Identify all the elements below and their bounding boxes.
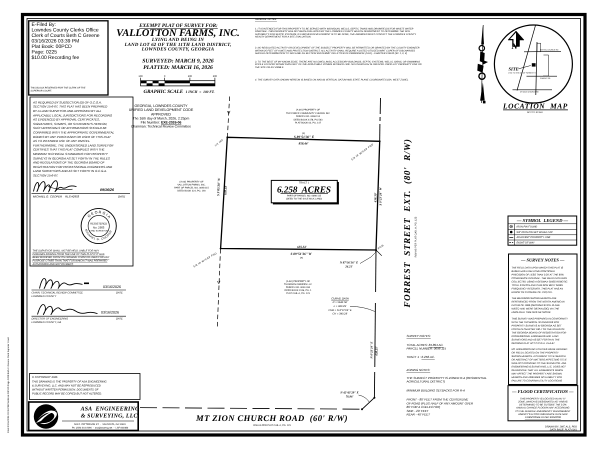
svg-text:N: N	[511, 41, 519, 51]
svg-text:DATA BASE: PLAT-0001: DATA BASE: PLAT-0001	[550, 429, 578, 432]
svg-text:SUPERIOR COURT.: SUPERIOR COURT.	[31, 90, 53, 93]
svg-text:Chairman: Technical Review Com: Chairman: Technical Review Committee	[131, 124, 191, 128]
svg-text:R = 5642.58': R = 5642.58'	[333, 301, 348, 304]
svg-text:THOMSON OWNERS LLC: THOMSON OWNERS LLC	[284, 283, 312, 286]
svg-text:SECTION 15-6-67.: SECTION 15-6-67.	[33, 174, 59, 178]
svg-text:L = 340.29': L = 340.29'	[334, 305, 347, 308]
svg-text:PART OF PARCEL NO. 0098 115: PART OF PARCEL NO. 0098 115	[174, 187, 209, 190]
svg-text:© COPYRIGHT 2026: © COPYRIGHT 2026	[32, 376, 58, 379]
svg-text:PLAT BOOK 03, PG. 147: PLAT BOOK 03, PG. 147	[295, 122, 322, 125]
svg-text:RIGHT-OF-WAY: RIGHT-OF-WAY	[517, 241, 535, 244]
svg-text:26.21': 26.21'	[344, 264, 353, 268]
svg-text:CHB = N 8°07'26" E: CHB = N 8°07'26" E	[328, 309, 351, 312]
svg-text:$10.00 Recording fee: $10.00 Recording fee	[32, 55, 80, 61]
svg-text:PARCEL NO. 0049 034: PARCEL NO. 0049 034	[286, 286, 311, 289]
svg-text:PART OF PARCEL NO. 0098 115: PART OF PARCEL NO. 0098 115	[287, 194, 322, 197]
svg-text:eGPS REAL TIME GPS NETWORK.: eGPS REAL TIME GPS NETWORK.	[512, 311, 552, 314]
svg-text:BETHEL CHURCH RD: BETHEL CHURCH RD	[540, 49, 559, 52]
svg-text:REAR - 40' FEET: REAR - 40' FEET	[407, 413, 432, 417]
svg-text:PLATTED: MARCH 16, 2026: PLATTED: MARCH 16, 2026	[143, 65, 213, 71]
svg-text:FAILURE TO CONFIRM UTILITY LOC: FAILURE TO CONFIRM UTILITY LOCATIONS	[512, 380, 563, 383]
svg-text:N 0°23'24" E: N 0°23'24" E	[369, 342, 373, 360]
svg-text:— SURVEY NOTES —: — SURVEY NOTES —	[520, 257, 565, 262]
svg-text:PLAT CAB. A, PG. 123: PLAT CAB. A, PG. 123	[286, 292, 310, 295]
svg-text:DEED BOOK 324, PG. 190: DEED BOOK 324, PG. 190	[177, 190, 206, 193]
svg-text:LOWNDES COUNTY, GEORGIA: LOWNDES COUNTY, GEORGIA	[141, 46, 215, 52]
svg-text:& SURVEYING, LLC.: & SURVEYING, LLC.	[81, 414, 140, 420]
svg-text:DEED BOOK 2246, PG. 1: DEED BOOK 2246, PG. 1	[285, 289, 313, 292]
svg-text:03/16/2026: 03/16/2026	[101, 310, 119, 314]
svg-text:6.258 ACRES: 6.258 ACRES	[277, 184, 331, 194]
svg-text:03/16/2026: 03/16/2026	[103, 285, 121, 289]
svg-text:CURVE DATA: CURVE DATA	[331, 296, 349, 300]
svg-text:AUTHORIZED AND NOT PAYMENT.: AUTHORIZED AND NOT PAYMENT.	[32, 263, 74, 266]
svg-text:LOCATION MAP: LOCATION MAP	[502, 102, 568, 111]
svg-text:4. THE SURVEY DATA SHOWN HERE: 4. THE SURVEY DATA SHOWN HEREON IS BASED…	[255, 79, 409, 82]
svg-text:DEED BOOK 4178, PG 563: DEED BOOK 4178, PG 563	[294, 118, 324, 121]
svg-text:CHAIR, TECHNICAL REVIEW COMMIT: CHAIR, TECHNICAL REVIEW COMMITTEE	[32, 291, 84, 294]
svg-text:(DEED TO THE SALE MILK LAND): (DEED TO THE SALE MILK LAND)	[286, 198, 322, 201]
svg-text:PARCEL NUMBER: 0098 115: PARCEL NUMBER: 0098 115	[407, 346, 447, 350]
svg-text:HEALTH DEPARTMENT FOR A SITE E: HEALTH DEPARTMENT FOR A SITE EVALUATION.	[255, 36, 311, 39]
svg-text:ERROR OF CLOSURE OF 1'/22,215: ERROR OF CLOSURE OF 1'/22,215'.	[512, 291, 553, 294]
svg-text:200: 200	[213, 75, 218, 78]
svg-text:ASA ENGINEERING: ASA ENGINEERING	[80, 407, 140, 413]
svg-text:GEORGIA PLAT ACT O.C.G.A. 15-: GEORGIA PLAT ACT O.C.G.A. 15-6-67.	[512, 342, 556, 345]
svg-text:PUBLIC RECORD MAY BE COPIED BU: PUBLIC RECORD MAY BE COPIED BUT NOT ALTE…	[32, 392, 102, 395]
svg-text:DATE: DATE	[116, 291, 123, 294]
svg-text:— FLOOD CERTIFICATION —: — FLOOD CERTIFICATION —	[511, 389, 574, 394]
svg-text:AGRICULTURAL DISTRICT): AGRICULTURAL DISTRICT)	[406, 380, 446, 384]
svg-text:638.18': 638.18'	[223, 185, 228, 195]
svg-text:LOWNDES COUNTY, GA: LOWNDES COUNTY, GA	[32, 321, 62, 324]
svg-text:LOWNDES COUNTY: LOWNDES COUNTY	[32, 295, 57, 298]
svg-text:DATE: DATE	[116, 318, 123, 321]
svg-text:ADJACENT PROPERTY LINE: ADJACENT PROPERTY LINE	[516, 236, 551, 239]
svg-text:13185C0056E DATED 9/26/2008: 13185C0056E DATED 9/26/2008	[525, 416, 562, 419]
svg-text:GENERAL NOTES:: GENERAL NOTES:	[255, 18, 277, 21]
svg-text:PARCEL NO. 0098 114: PARCEL NO. 0098 114	[296, 115, 321, 118]
svg-text:(A 06') PROPERTY OF: (A 06') PROPERTY OF	[286, 280, 310, 283]
svg-text:WITHOUT WRITTEN PERMISSION. DO: WITHOUT WRITTEN PERMISSION. DOCUMENTS OF	[32, 388, 99, 391]
svg-text:R/W AS PER PLAT CAB. A, PG. 12: R/W AS PER PLAT CAB. A, PG. 123	[253, 424, 291, 427]
svg-text:MICHAEL G. COOPER RLS #2903: MICHAEL G. COOPER RLS #2903	[33, 195, 80, 199]
svg-text:& SURVEYING, LLC. AND MAY NOT: & SURVEYING, LLC. AND MAY NOT BE REPRODU…	[32, 384, 101, 387]
svg-text:858.44': 858.44'	[299, 141, 309, 145]
svg-text:5/8" IRON PIN SET W/ASA CAP: 5/8" IRON PIN SET W/ASA CAP	[517, 231, 554, 234]
svg-text:SURVEY NOTES:: SURVEY NOTES:	[407, 334, 431, 338]
svg-text:09/16/26: 09/16/26	[100, 188, 115, 192]
svg-text:655.52': 655.52'	[297, 245, 307, 249]
svg-text:— SYMBOL LEGEND —: — SYMBOL LEGEND —	[516, 218, 569, 223]
svg-text:S 89°51'36" E: S 89°51'36" E	[294, 135, 315, 139]
svg-text:TRACT 1 : 6.258 AC.: TRACT 1 : 6.258 AC.	[407, 355, 435, 359]
svg-text:(A 06') PROPERTY OF: (A 06') PROPERTY OF	[180, 181, 204, 184]
svg-text:SURVEYED: MARCH 9, 2026: SURVEYED: MARCH 9, 2026	[142, 58, 214, 64]
svg-text:THIS BLOCK RESERVED FOR THE CL: THIS BLOCK RESERVED FOR THE CLERK OF THE	[31, 87, 86, 90]
svg-text:76.96': 76.96'	[346, 394, 354, 398]
svg-text:R/W AS PER PLAT CAB. A, PG. 12: R/W AS PER PLAT CAB. A, PG. 123	[415, 216, 418, 257]
svg-text:ZONING NOTES:: ZONING NOTES:	[406, 368, 431, 372]
svg-text:100: 100	[188, 75, 193, 78]
svg-text:DATE: DATE	[118, 195, 125, 199]
svg-text:IRON PIN FOUND: IRON PIN FOUND	[517, 225, 538, 228]
svg-text:504 E. PATTERSON ST. - VALDO: 504 E. PATTERSON ST. - VALDOSTA, GA 3160…	[74, 423, 126, 426]
svg-text:VALLOTTON FARMS, INC.: VALLOTTON FARMS, INC.	[177, 184, 206, 187]
svg-text:MT ZION CHURCH ROAD (60' R/W): MT ZION CHURCH ROAD (60' R/W)	[195, 413, 348, 423]
svg-text:± 556' TO THE INT. OF FORREST: ± 556' TO THE INT. OF FORREST ST.	[508, 72, 537, 75]
svg-text:MINIMUM BUILDING SETBACKS FOR: MINIMUM BUILDING SETBACKS FOR R-A	[407, 389, 466, 393]
svg-text:THE FORCE COMMUNITY CHURCH INC: THE FORCE COMMUNITY CHURCH INC	[286, 112, 330, 115]
svg-text:SHOULD DETERMINATION TO DECLAR: SHOULD DETERMINATION TO DECLARE AS SECTI…	[255, 52, 407, 55]
svg-text:(A 06') PROPERTY OF: (A 06') PROPERTY OF	[296, 109, 320, 112]
svg-text:FORREST STREET EXT. (80' R: FORREST STREET EXT. (80' R/W)	[402, 138, 412, 308]
svg-text:S 89°51'36" W: S 89°51'36" W	[291, 252, 313, 256]
svg-text:Ph: (229) 244-2496 - asa@asa: Ph: (229) 244-2496 - asa@asaeng.net - LS…	[72, 426, 129, 429]
svg-text:438.30': 438.30'	[374, 193, 378, 204]
svg-text:THIS DRAWING IS THE PROPERTY O: THIS DRAWING IS THE PROPERTY OF ASA ENGI…	[32, 380, 107, 383]
svg-text:MT ZION CHURCH RD: MT ZION CHURCH RD	[520, 91, 539, 94]
svg-text:(R): (R)	[300, 256, 303, 259]
svg-text:Filed 03/16/2026 03:39 PM Plat: Filed 03/16/2026 03:39 PM Plat Book 00PC…	[7, 337, 10, 433]
svg-text:DIRECTOR OF ENGINEERING: DIRECTOR OF ENGINEERING	[32, 318, 69, 321]
svg-text:LAND SURVEYOR: LAND SURVEYOR	[89, 230, 108, 233]
svg-text:638.25': 638.25'	[375, 346, 379, 355]
svg-text:CH = 340.29': CH = 340.29'	[332, 313, 348, 316]
svg-text:S 0°23'24" W: S 0°23'24" W	[378, 186, 382, 205]
svg-text:SITE: SITE	[509, 67, 519, 72]
svg-text:FOREST DR: FOREST DR	[540, 77, 551, 80]
svg-text:100: 100	[138, 75, 143, 78]
svg-text:THE SITE OR AS VISIBLE.: THE SITE OR AS VISIBLE.	[255, 66, 284, 69]
svg-text:No. 2903: No. 2903	[93, 225, 105, 229]
svg-text:NOT TO SCALE: NOT TO SCALE	[527, 111, 543, 114]
